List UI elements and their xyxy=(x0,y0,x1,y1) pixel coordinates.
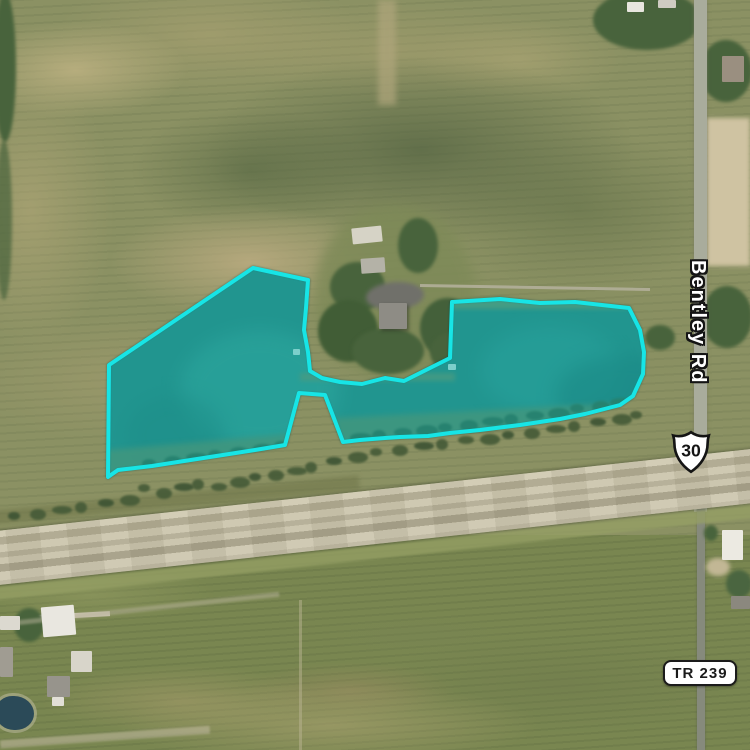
map-canvas[interactable]: Bentley Rd 30 TR 239 xyxy=(0,0,750,750)
parcel-outline[interactable] xyxy=(108,268,644,477)
tr-239-label: TR 239 xyxy=(663,660,737,686)
bentley-rd-label: Bentley Rd xyxy=(686,260,709,384)
route-number: 30 xyxy=(681,440,701,460)
parcel-highlight-svg xyxy=(0,0,750,750)
us-route-30-shield-icon: 30 xyxy=(671,430,711,474)
tr-239-text: TR 239 xyxy=(672,665,727,682)
